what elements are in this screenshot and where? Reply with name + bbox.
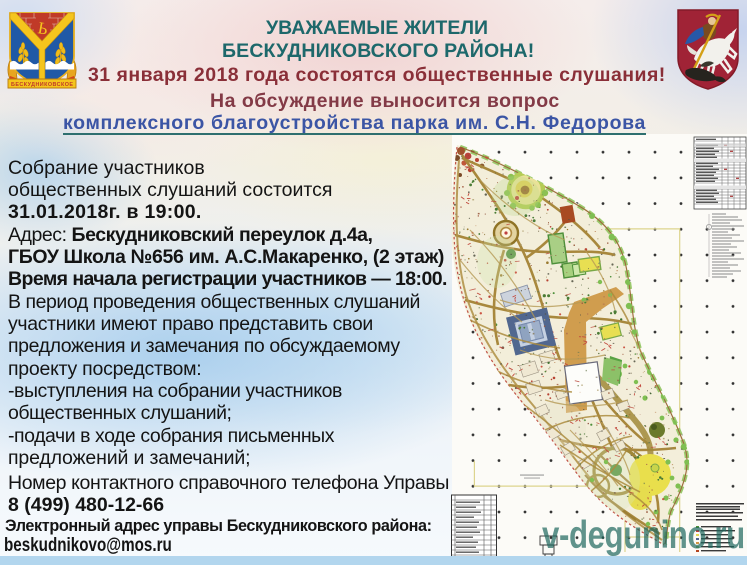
svg-text:БЕСКУДНИКОВСКОЕ: БЕСКУДНИКОВСКОЕ	[11, 82, 73, 88]
